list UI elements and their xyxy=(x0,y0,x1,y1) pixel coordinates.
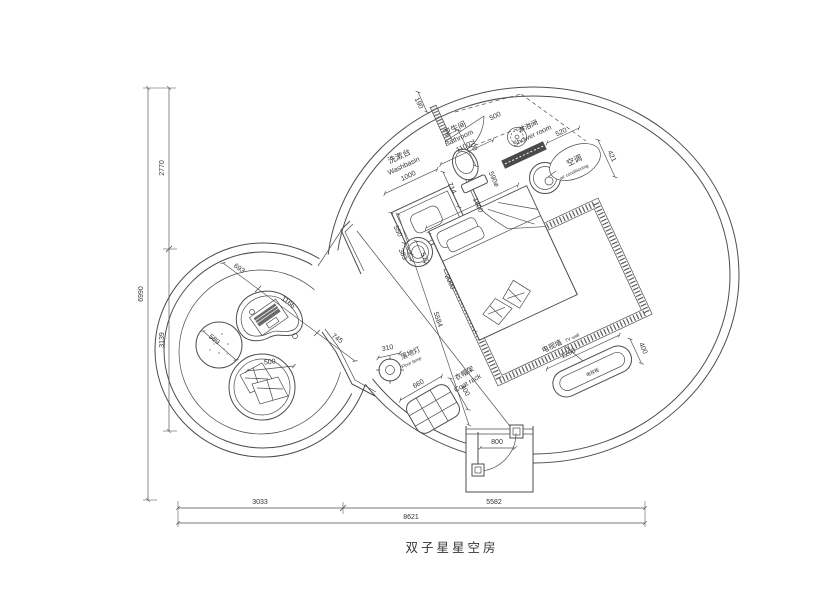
door-post xyxy=(510,425,523,438)
dim-upper-height: 2770 xyxy=(159,160,166,176)
shower-labels: 淋浴间 Shower room xyxy=(507,113,553,148)
coat-rack-width-dim: 660 xyxy=(412,378,426,390)
washbasin-width-dim: 1000 xyxy=(400,170,417,183)
floor-lamp-labels: 落地灯 Floor lamp xyxy=(396,344,425,369)
drawing-title: 双子星星空房 xyxy=(405,540,498,555)
floor-lamp-dia-dim: 310 xyxy=(381,344,394,353)
entry-vestibule: 800 xyxy=(466,425,533,492)
dim-door-swing: 500 xyxy=(489,111,503,122)
tv-depth-dim: 400 xyxy=(637,342,648,356)
lounge-chair: 500 xyxy=(229,354,295,420)
dim-post: 590⌀ xyxy=(487,171,500,188)
entry-door-dim: 800 xyxy=(491,439,503,446)
dim-width-left: 3033 xyxy=(252,499,268,506)
floor-plan-drawing: 洗漱台 Washbasin 1000 xyxy=(0,0,837,592)
tv-cabinet: 电视柜 1200 400 电视墙 TV wall xyxy=(535,306,651,401)
chair-dim: 500 xyxy=(264,358,276,366)
door-post xyxy=(472,464,484,476)
dim-total-width: 8621 xyxy=(403,514,419,521)
dim-total-height: 6990 xyxy=(138,286,145,302)
pouf: 589 xyxy=(196,322,242,368)
dim-bath-wall: 190 xyxy=(413,97,424,111)
dim-lower-height: 3139 xyxy=(159,332,166,348)
floor-plan-page: 洗漱台 Washbasin 1000 xyxy=(0,0,837,592)
dim-width-right: 5582 xyxy=(486,499,502,506)
overall-dimensions-bottom: 3033 5582 8621 xyxy=(178,499,645,527)
shower-boundary-dashed xyxy=(455,94,521,112)
